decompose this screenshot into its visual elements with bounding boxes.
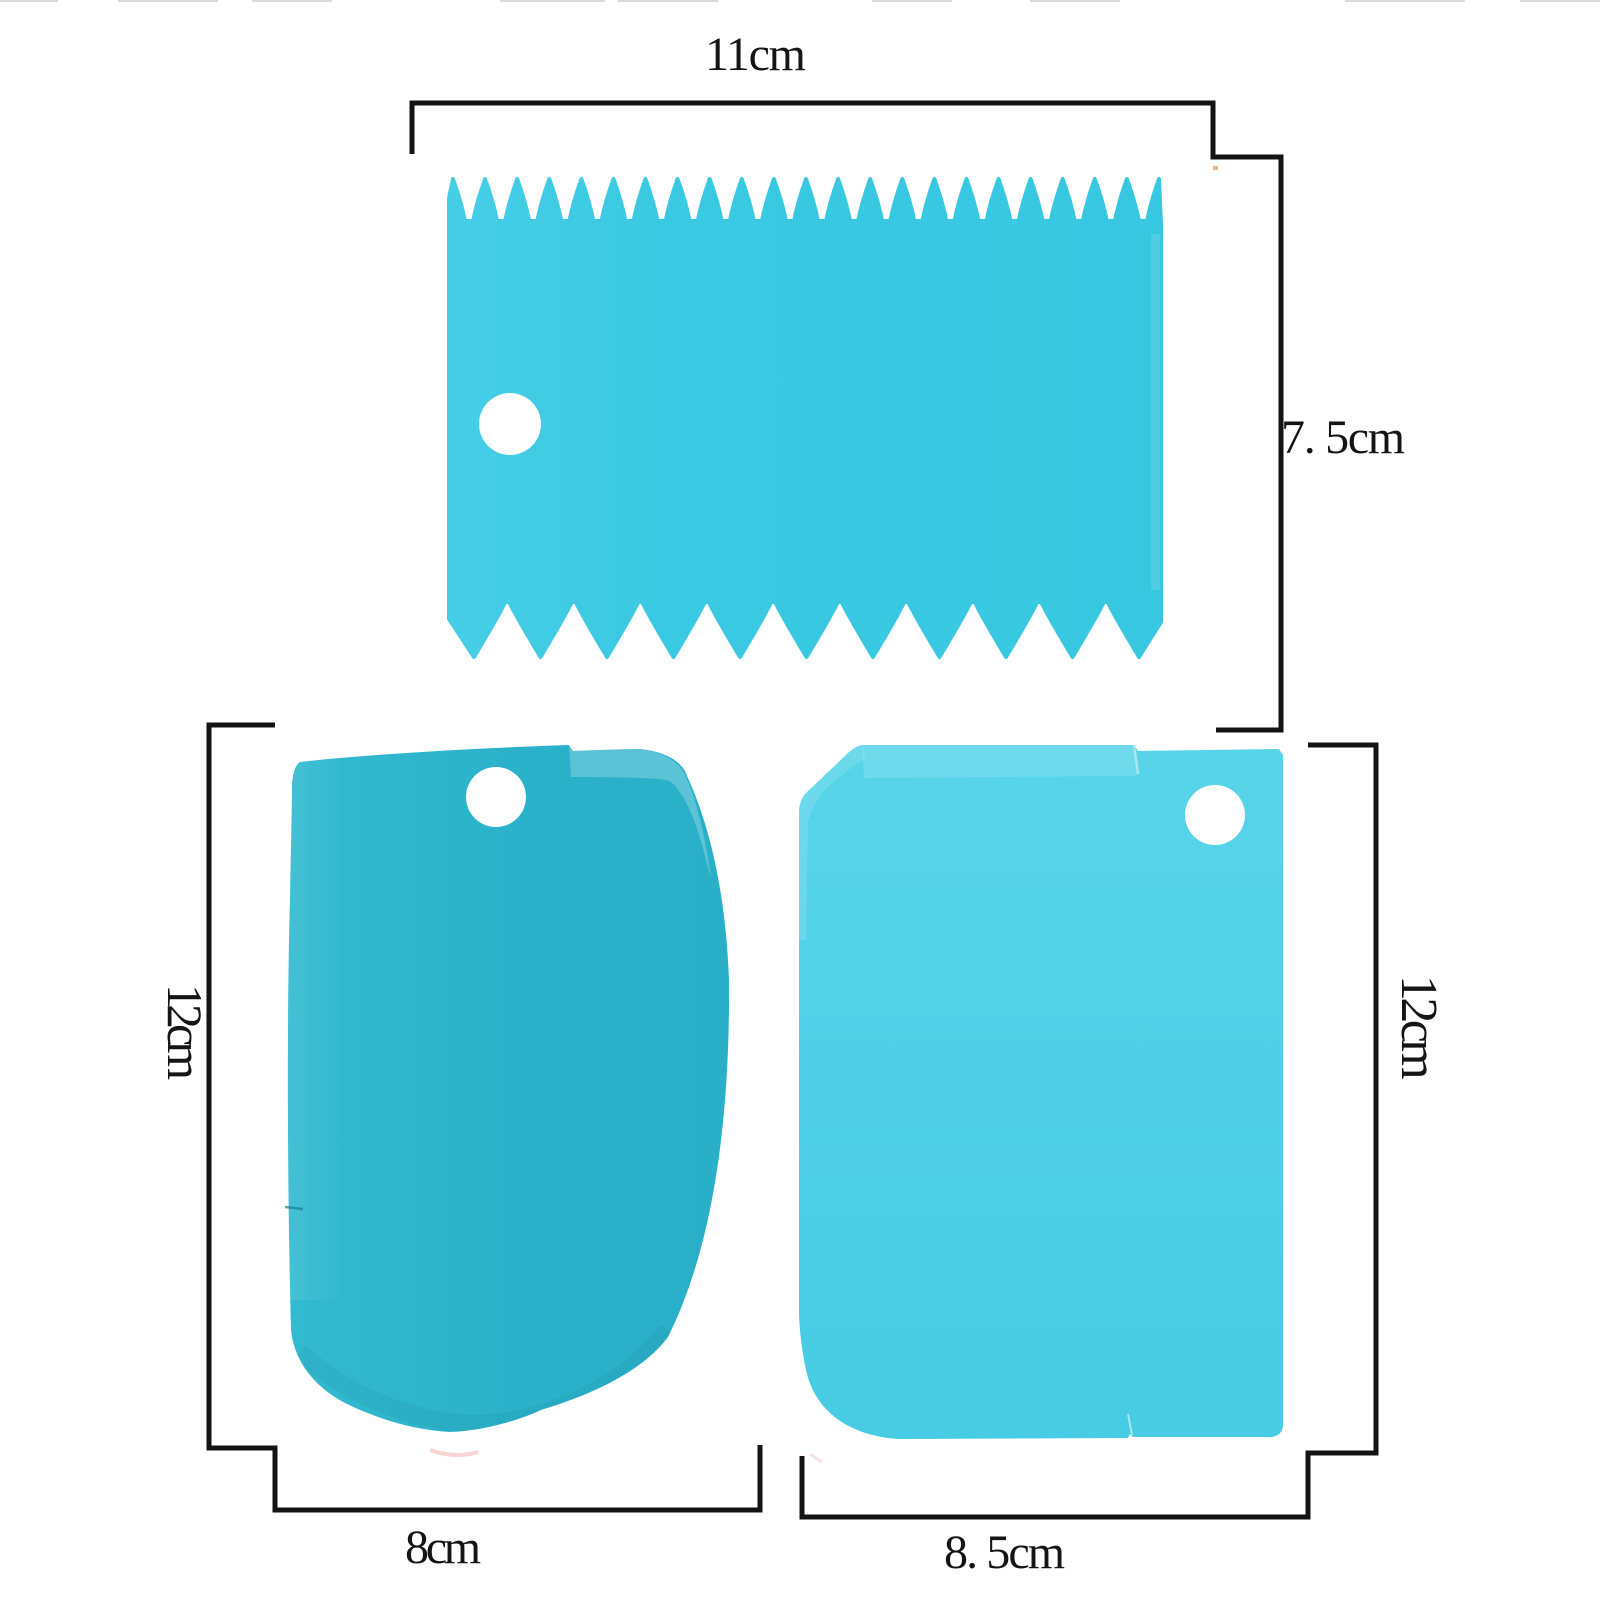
svg-text:11cm: 11cm bbox=[705, 28, 806, 81]
svg-text:8cm: 8cm bbox=[405, 1521, 481, 1574]
svg-text:8. 5cm: 8. 5cm bbox=[944, 1526, 1065, 1579]
svg-text:7. 5cm: 7. 5cm bbox=[1281, 411, 1405, 464]
svg-text:12cm: 12cm bbox=[157, 984, 213, 1080]
svg-text:12cm: 12cm bbox=[1390, 975, 1447, 1079]
